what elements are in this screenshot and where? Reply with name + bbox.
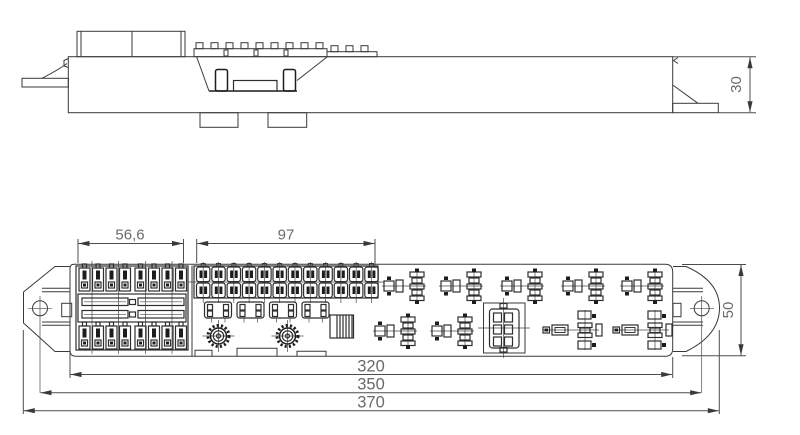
dim-97: 97 [197, 227, 375, 269]
terminal-cluster [500, 269, 544, 305]
fuse-slot [135, 264, 146, 291]
terminal-cluster [613, 310, 672, 350]
dim-56-6: 56,6 [78, 227, 184, 264]
relay-socket [302, 302, 329, 323]
connector-cell [212, 262, 225, 303]
side-left-tab [22, 78, 68, 87]
dim-label-56-6: 56,6 [115, 227, 144, 244]
dim-350: 350 [41, 376, 702, 394]
dim-label-370: 370 [357, 394, 385, 412]
terminal-cluster [543, 310, 602, 350]
side-left-step [64, 59, 68, 68]
screw-terminal [203, 320, 235, 352]
fuse-slot [79, 264, 90, 291]
relay-socket [237, 302, 264, 323]
screw-terminal [272, 320, 304, 352]
terminal-cluster [620, 269, 664, 305]
terminal-cluster [439, 269, 483, 305]
terminal-cluster [561, 269, 605, 305]
fuse-slot [162, 322, 173, 349]
fuse-slot [135, 322, 146, 349]
plan-view: 56,6 97 50 320 350 [23, 227, 746, 415]
fuse-slot [120, 264, 131, 291]
fuse-slot [106, 322, 117, 349]
technical-drawing-canvas: 30 [0, 0, 800, 435]
connector-row [188, 262, 384, 303]
connector-cell [242, 262, 255, 303]
relay-socket [270, 302, 297, 323]
dim-label-350: 350 [357, 376, 385, 394]
dim-label-30: 30 [728, 76, 745, 93]
side-view: 30 [22, 31, 756, 127]
fuse-slot [93, 264, 104, 291]
connector-cell [350, 262, 363, 303]
fuse-slot [162, 264, 173, 291]
fuse-slot [149, 264, 160, 291]
dim-50: 50 [682, 265, 746, 356]
side-recess [197, 57, 327, 91]
connector-cell [258, 262, 271, 303]
fuse-slot [93, 322, 104, 349]
dim-label-320: 320 [357, 358, 385, 376]
mounting-ear-right [673, 267, 720, 393]
center-box-connector [478, 298, 530, 358]
dim-label-50: 50 [720, 302, 737, 319]
plan-notch [297, 351, 326, 356]
side-right-hook [674, 58, 679, 64]
side-right-chamfer [673, 85, 698, 103]
fuse-block [76, 261, 188, 354]
dim-label-97: 97 [278, 227, 295, 244]
connector-cell [365, 262, 378, 303]
side-foot-right [268, 113, 307, 128]
terminal-cluster [373, 314, 417, 350]
connector-cell [334, 262, 347, 303]
connector-cell [273, 262, 286, 303]
fuse-slot [176, 264, 187, 291]
fuse-slot [120, 322, 131, 349]
terminal-cluster [430, 314, 474, 350]
fuse-slot [176, 322, 187, 349]
relay-socket [205, 302, 232, 323]
hatched-connector [330, 315, 354, 338]
side-raised-block [77, 31, 185, 56]
connector-cell [319, 262, 332, 303]
side-left-wire-line [42, 64, 67, 79]
plan-notch [237, 348, 277, 356]
connector-cell [197, 262, 210, 303]
dim-30: 30 [673, 57, 756, 113]
fuse-slot [79, 322, 90, 349]
fuse-bus-bars [78, 294, 186, 322]
mounting-ear-left [24, 267, 72, 393]
fuse-slot [149, 322, 160, 349]
side-terminal-strip [194, 43, 377, 57]
connector-cell [288, 262, 301, 303]
connector-cell [304, 262, 317, 303]
plan-notch [195, 350, 212, 356]
side-right-foot [673, 103, 719, 112]
side-foot-left [200, 113, 238, 128]
terminal-cluster [382, 269, 426, 305]
connector-cell [227, 262, 240, 303]
side-body-outline [68, 57, 672, 113]
fuse-slot [106, 264, 117, 291]
